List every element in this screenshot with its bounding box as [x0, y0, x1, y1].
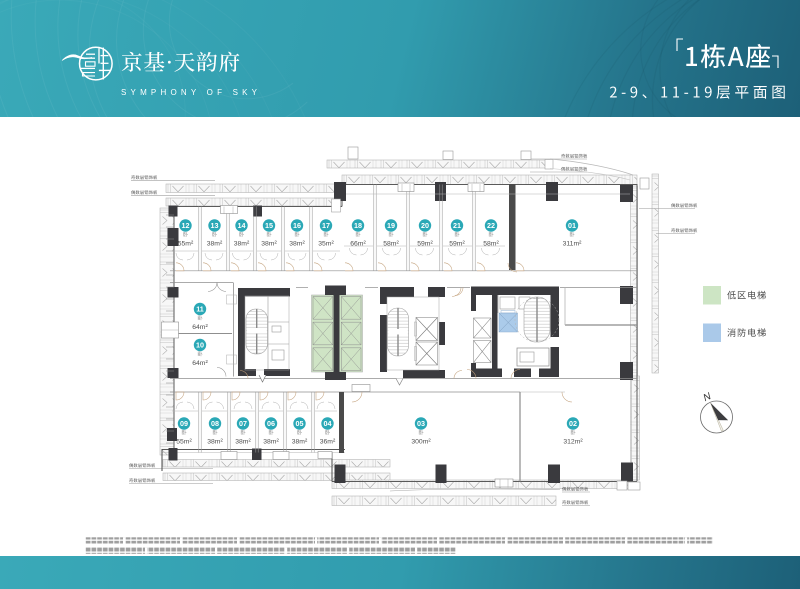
svg-text:38m²: 38m²	[234, 240, 250, 247]
svg-text:38m²: 38m²	[292, 438, 308, 445]
svg-text:66m²: 66m²	[350, 240, 366, 247]
svg-text:08: 08	[211, 419, 219, 428]
svg-text:311m²: 311m²	[563, 240, 582, 247]
svg-text:22: 22	[487, 221, 495, 230]
svg-text:59m²: 59m²	[449, 240, 465, 247]
svg-text:38m²: 38m²	[207, 240, 223, 247]
svg-text:38m²: 38m²	[261, 240, 277, 247]
svg-text:12: 12	[182, 221, 190, 230]
svg-text:09: 09	[180, 419, 188, 428]
svg-text:38m²: 38m²	[235, 438, 251, 445]
svg-text:21: 21	[453, 221, 461, 230]
svg-text:05: 05	[296, 419, 304, 428]
svg-text:36m²: 36m²	[320, 438, 336, 445]
svg-text:59m²: 59m²	[417, 240, 433, 247]
svg-text:64m²: 64m²	[192, 324, 208, 331]
svg-text:55m²: 55m²	[176, 438, 192, 445]
svg-text:58m²: 58m²	[383, 240, 399, 247]
svg-text:38m²: 38m²	[207, 438, 223, 445]
svg-text:11: 11	[196, 305, 204, 314]
svg-text:19: 19	[387, 221, 395, 230]
svg-text:06: 06	[267, 419, 275, 428]
svg-text:17: 17	[322, 221, 330, 230]
svg-text:312m²: 312m²	[563, 438, 583, 445]
svg-text:03: 03	[417, 419, 425, 428]
svg-text:14: 14	[238, 221, 246, 230]
svg-text:01: 01	[568, 221, 576, 230]
svg-text:20: 20	[421, 221, 429, 230]
svg-text:64m²: 64m²	[192, 360, 208, 367]
svg-text:38m²: 38m²	[289, 240, 305, 247]
svg-text:07: 07	[239, 419, 247, 428]
svg-text:10: 10	[196, 341, 204, 350]
svg-text:300m²: 300m²	[411, 438, 431, 445]
svg-text:35m²: 35m²	[318, 240, 334, 247]
svg-text:38m²: 38m²	[263, 438, 279, 445]
svg-text:18: 18	[354, 221, 362, 230]
svg-text:02: 02	[569, 419, 577, 428]
svg-text:15: 15	[265, 221, 273, 230]
svg-text:55m²: 55m²	[178, 240, 194, 247]
svg-text:13: 13	[211, 221, 219, 230]
svg-text:58m²: 58m²	[483, 240, 499, 247]
svg-text:04: 04	[324, 419, 332, 428]
svg-text:16: 16	[293, 221, 301, 230]
